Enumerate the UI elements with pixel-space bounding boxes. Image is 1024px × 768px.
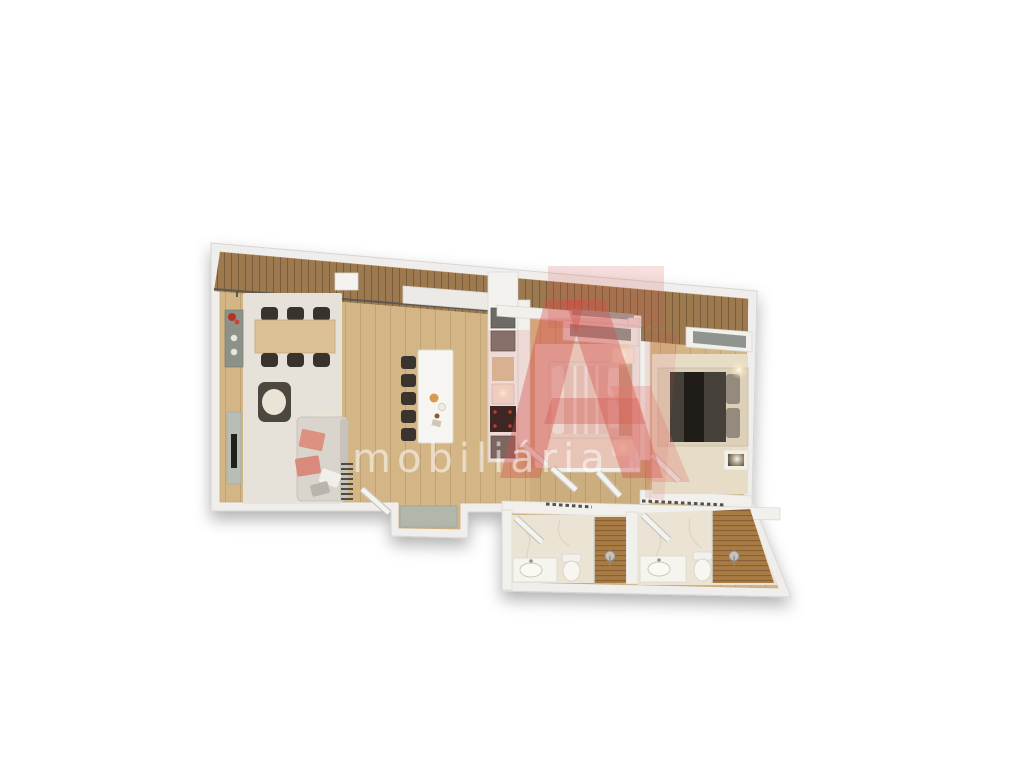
sink-basin xyxy=(648,562,670,576)
bedside-lamp-glow xyxy=(725,447,749,471)
shower-slats xyxy=(594,517,626,583)
sideboard-knob xyxy=(231,335,238,342)
bar-stool xyxy=(401,356,416,369)
island-bowl xyxy=(430,394,439,403)
bar-stool xyxy=(401,374,416,387)
island-bowl xyxy=(435,414,440,419)
armchair xyxy=(258,382,291,422)
toilet xyxy=(693,552,712,581)
bathroom-1 xyxy=(512,504,626,583)
floorplan-canvas: mobiliária xyxy=(0,0,1024,768)
faucet-icon xyxy=(529,559,533,563)
doormat xyxy=(400,506,457,527)
flower-vase xyxy=(228,313,236,321)
bar-stool xyxy=(401,410,416,423)
bed-runner xyxy=(684,372,704,442)
watermark-text: mobiliária xyxy=(352,436,611,482)
dining-chair xyxy=(313,307,330,321)
floorplan-svg: mobiliária xyxy=(0,0,1024,768)
bed-pillow xyxy=(726,408,740,438)
dining-table xyxy=(255,320,335,353)
tv xyxy=(231,434,237,468)
dining-chair xyxy=(261,307,278,321)
dining-chair xyxy=(287,307,304,321)
island-plate xyxy=(439,404,446,411)
wall-light-glow xyxy=(730,361,748,379)
ac-unit xyxy=(335,273,358,290)
wall-bathrooms-left xyxy=(502,510,512,590)
sideboard-knob xyxy=(231,349,238,356)
sofa xyxy=(295,417,348,501)
toilet xyxy=(562,554,581,581)
dining-chair xyxy=(287,353,304,367)
sofa-cushion xyxy=(295,455,322,477)
dining-chair xyxy=(261,353,278,367)
faucet-icon xyxy=(657,558,661,562)
flower-vase xyxy=(235,320,240,325)
wall-between-bathrooms xyxy=(626,512,638,584)
dining-chair xyxy=(313,353,330,367)
sink-basin xyxy=(520,563,542,577)
bar-stool xyxy=(401,392,416,405)
living-dining-room xyxy=(225,293,353,504)
entry-vestibule xyxy=(400,506,457,527)
